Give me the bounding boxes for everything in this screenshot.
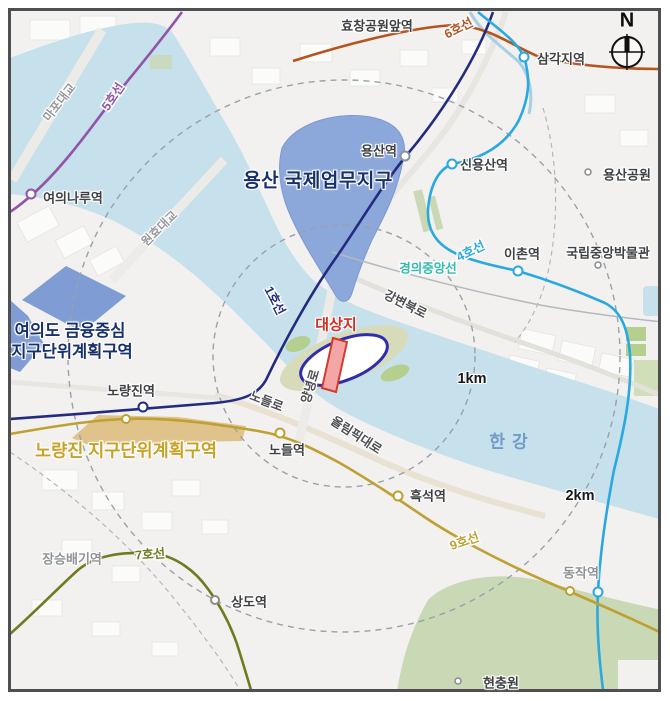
station-label-samgakji: 삼각지역 <box>537 49 585 68</box>
station-dot-yongsan <box>401 152 410 161</box>
radius-label-1km: 1km <box>457 371 486 387</box>
map-screenshot: N 효창공원앞역 삼각지역 용산역 신용산역 용산공원 여의나루역 이촌역 국립… <box>0 0 670 701</box>
station-label-sinyongsan: 신용산역 <box>460 155 508 174</box>
line7-badge: 7호선 <box>134 542 165 563</box>
poi-dot-museum <box>595 262 601 268</box>
station-dot-heukseok <box>394 492 403 501</box>
target-site-label: 대상지 <box>315 314 356 335</box>
station-label-yongsan: 용산역 <box>361 141 397 160</box>
river-label: 한강 <box>489 428 534 453</box>
station-dot-noryangjin-line1 <box>139 403 148 412</box>
station-label-yeouinaru: 여의나루역 <box>43 188 103 207</box>
station-label-ichon: 이촌역 <box>504 244 540 263</box>
station-dot-dongjak-line4 <box>594 588 603 597</box>
station-label-sangdo: 상도역 <box>231 592 267 611</box>
compass-north-needle <box>625 36 630 52</box>
station-dot-sinyongsan <box>448 160 457 169</box>
poi-label-hyeonchungwon: 현충원 <box>483 673 519 692</box>
station-label-nodeul: 노들역 <box>269 440 305 459</box>
station-dot-nodeul <box>276 429 285 438</box>
station-label-jangseungbaegi: 장승배기역 <box>42 549 102 568</box>
gyeongui-line-badge: 경의중앙선 <box>399 258 457 277</box>
station-dot-dongjak-line9 <box>566 587 574 595</box>
station-dot-samgakji <box>520 53 529 62</box>
station-label-hyochang: 효창공원앞역 <box>341 16 413 35</box>
poi-dot-yongsan-park <box>585 169 591 175</box>
region-label-yeouido-line2: 지구단위계획구역 <box>11 338 132 362</box>
station-label-heukseok: 흑석역 <box>410 486 446 505</box>
poi-dot-hyeonchungwon <box>455 678 461 684</box>
station-label-dongjak: 동작역 <box>563 563 599 582</box>
radius-label-2km: 2km <box>565 488 594 504</box>
station-dot-noryangjin-line9 <box>122 415 130 423</box>
poi-label-museum: 국립중앙박물관 <box>566 243 650 262</box>
compass-n-label: N <box>620 10 634 33</box>
station-label-noryangjin: 노량진역 <box>107 381 155 400</box>
region-label-noryangjin: 노량진 지구단위계획구역 <box>35 438 217 463</box>
pond <box>643 286 668 316</box>
poi-label-yongsan-park: 용산공원 <box>603 165 651 184</box>
station-dot-yeouinaru <box>27 190 36 199</box>
station-dot-ichon <box>514 267 523 276</box>
region-label-yongsan-ibd: 용산 국제업무지구 <box>243 166 393 193</box>
station-dot-sangdo <box>211 596 219 604</box>
